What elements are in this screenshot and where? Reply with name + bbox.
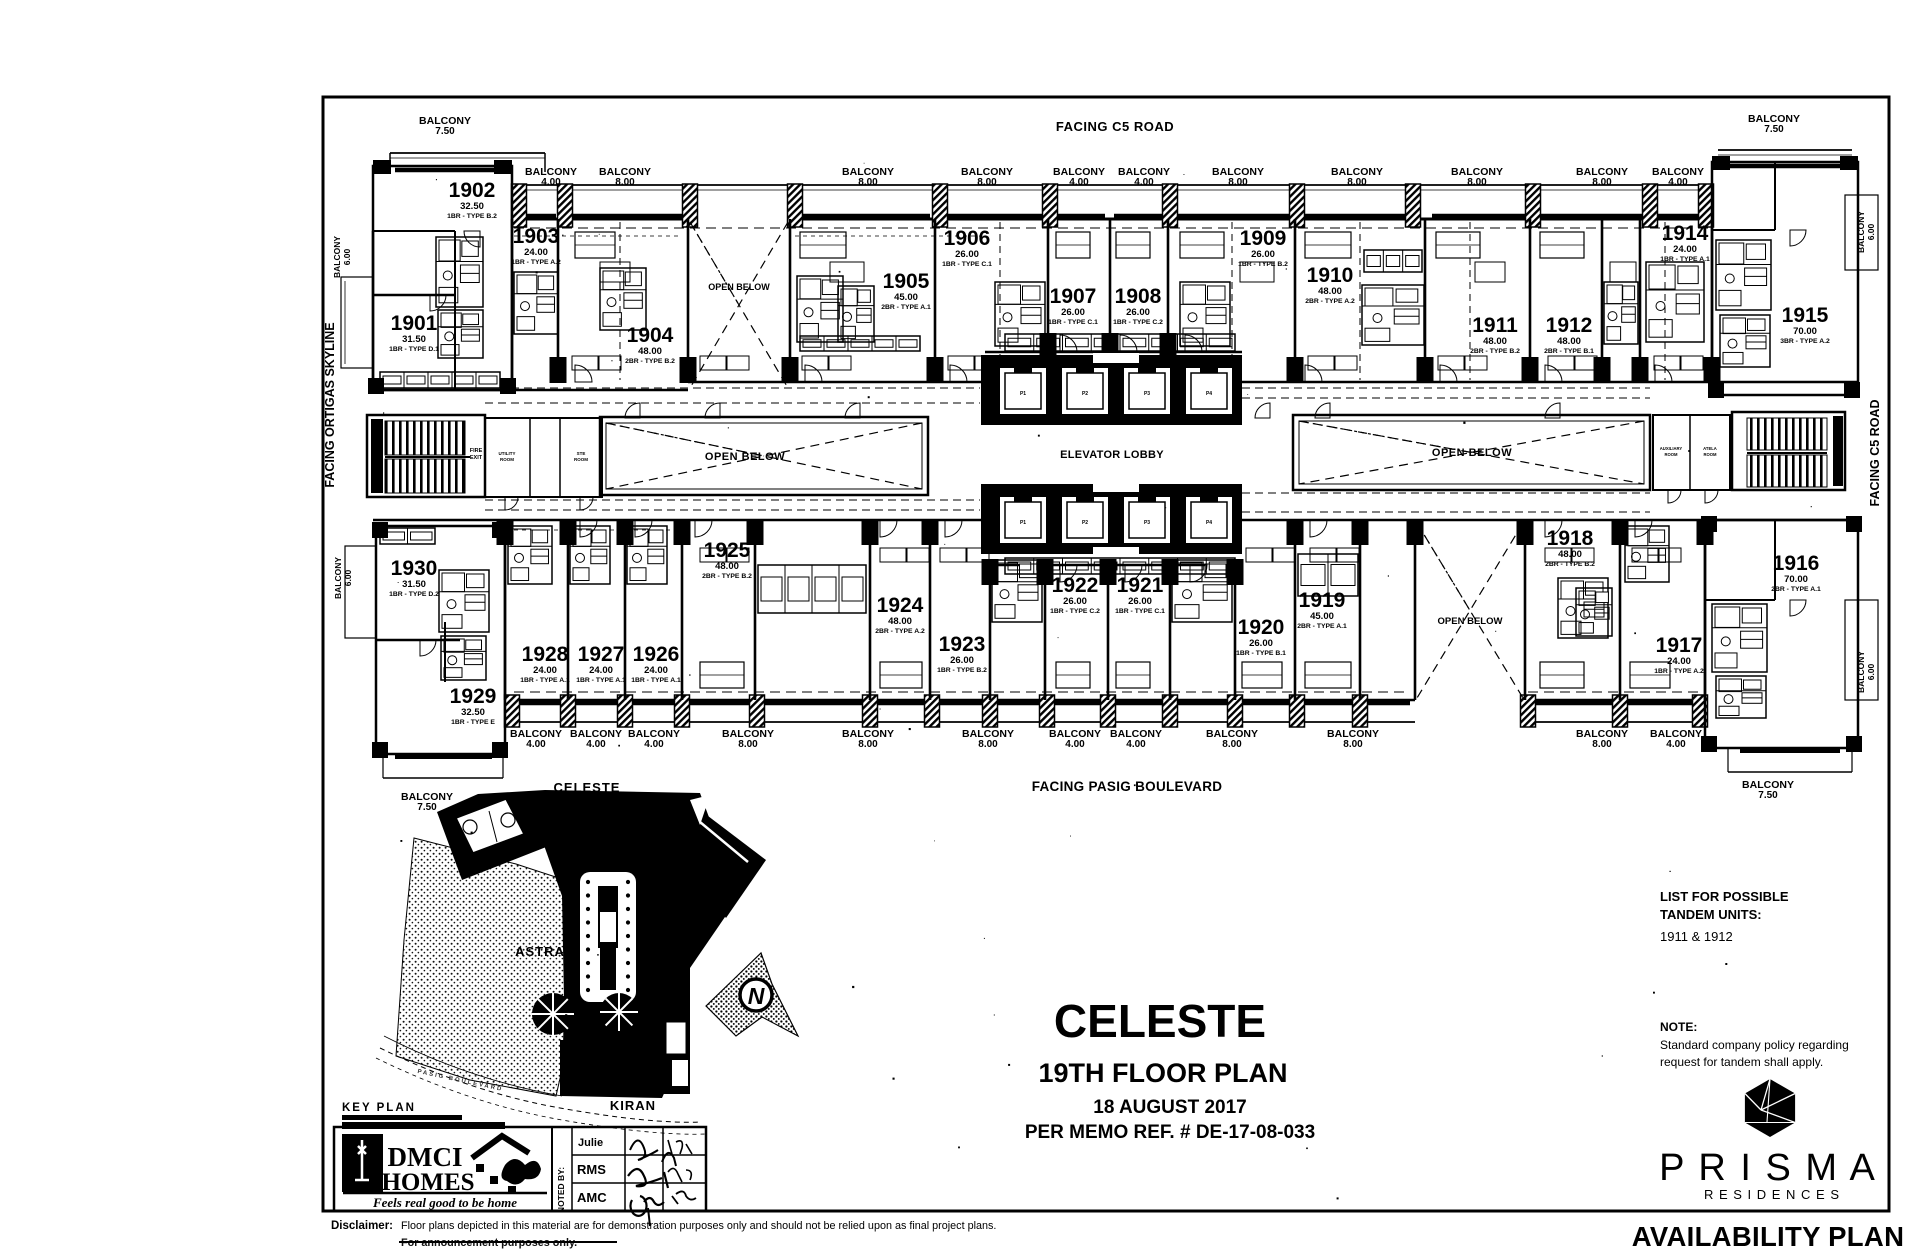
svg-text:P1: P1	[1020, 391, 1026, 397]
svg-text:8.00: 8.00	[858, 177, 878, 188]
svg-text:FACING PASIG BOULEVARD: FACING PASIG BOULEVARD	[1032, 779, 1223, 794]
svg-text:1BR - TYPE A.2: 1BR - TYPE A.2	[1654, 668, 1704, 675]
svg-text:26.00: 26.00	[1128, 596, 1152, 607]
svg-text:48.00: 48.00	[638, 346, 662, 357]
svg-text:2BR - TYPE B.2: 2BR - TYPE B.2	[625, 358, 675, 365]
svg-text:1BR - TYPE C.1: 1BR - TYPE C.1	[1048, 319, 1098, 326]
svg-text:PER MEMO REF. # DE-17-08-033: PER MEMO REF. # DE-17-08-033	[1025, 1122, 1315, 1143]
svg-text:2BR - TYPE A.2: 2BR - TYPE A.2	[875, 628, 925, 635]
svg-text:7.50: 7.50	[1764, 124, 1784, 135]
svg-text:CELESTE: CELESTE	[1054, 995, 1266, 1047]
svg-text:1903: 1903	[513, 225, 560, 248]
svg-text:1BR - TYPE D.1: 1BR - TYPE D.1	[389, 346, 439, 353]
svg-text:1901: 1901	[391, 312, 438, 335]
svg-text:1BR - TYPE A.1: 1BR - TYPE A.1	[520, 677, 570, 684]
svg-text:1BR - TYPE C.2: 1BR - TYPE C.2	[1113, 319, 1163, 326]
svg-text:1BR - TYPE E: 1BR - TYPE E	[451, 719, 495, 726]
svg-text:4.00: 4.00	[526, 739, 546, 750]
svg-text:1BR - TYPE A.1: 1BR - TYPE A.1	[631, 677, 681, 684]
svg-text:24.00: 24.00	[533, 665, 557, 676]
svg-text:1915: 1915	[1782, 304, 1829, 327]
svg-text:19TH FLOOR PLAN: 19TH FLOOR PLAN	[1038, 1058, 1287, 1088]
svg-text:1919: 1919	[1299, 589, 1346, 612]
svg-text:AMC: AMC	[577, 1190, 607, 1205]
svg-text:1BR - TYPE B.2: 1BR - TYPE B.2	[1238, 261, 1288, 268]
svg-text:1917: 1917	[1656, 634, 1703, 657]
svg-text:4.00: 4.00	[1666, 739, 1686, 750]
svg-text:1921: 1921	[1117, 574, 1164, 597]
svg-text:26.00: 26.00	[955, 249, 979, 260]
svg-text:8.00: 8.00	[1592, 177, 1612, 188]
svg-text:EXIT: EXIT	[470, 455, 483, 461]
svg-text:70.00: 70.00	[1793, 326, 1817, 337]
svg-text:R E S I D E N C E S: R E S I D E N C E S	[1704, 1187, 1840, 1202]
svg-text:1929: 1929	[450, 685, 497, 708]
svg-text:8.00: 8.00	[1467, 177, 1487, 188]
svg-text:CELESTE: CELESTE	[554, 780, 621, 795]
svg-text:8.00: 8.00	[1343, 739, 1363, 750]
svg-text:2BR - TYPE B.1: 2BR - TYPE B.1	[1544, 348, 1594, 355]
svg-text:FACING ORTIGAS SKYLINE: FACING ORTIGAS SKYLINE	[323, 322, 337, 487]
svg-text:BALCONY: BALCONY	[1856, 211, 1866, 253]
svg-text:4.00: 4.00	[1668, 177, 1688, 188]
svg-text:1920: 1920	[1238, 616, 1285, 639]
svg-text:FACING C5 ROAD: FACING C5 ROAD	[1868, 400, 1882, 507]
svg-text:STE: STE	[577, 451, 586, 456]
svg-text:1908: 1908	[1115, 285, 1162, 308]
svg-text:26.00: 26.00	[1061, 307, 1085, 318]
svg-text:NOTE:: NOTE:	[1660, 1020, 1697, 1034]
svg-text:P R I S M A: P R I S M A	[1659, 1147, 1877, 1189]
svg-text:1927: 1927	[578, 643, 625, 666]
svg-text:4.00: 4.00	[1126, 739, 1146, 750]
svg-text:1905: 1905	[883, 270, 930, 293]
svg-text:2BR - TYPE A.1: 2BR - TYPE A.1	[881, 304, 931, 311]
svg-text:OPEN BELOW: OPEN BELOW	[1432, 447, 1512, 459]
svg-text:OPEN BELOW: OPEN BELOW	[708, 282, 770, 292]
svg-text:24.00: 24.00	[644, 665, 668, 676]
svg-text:ROOM: ROOM	[574, 457, 588, 462]
svg-text:24.00: 24.00	[1667, 656, 1691, 667]
svg-text:1923: 1923	[939, 633, 986, 656]
svg-text:1BR - TYPE C.1: 1BR - TYPE C.1	[942, 261, 992, 268]
svg-text:4.00: 4.00	[541, 177, 561, 188]
svg-text:8.00: 8.00	[1222, 739, 1242, 750]
svg-text:1906: 1906	[944, 227, 991, 250]
svg-text:2BR - TYPE B.2: 2BR - TYPE B.2	[702, 573, 752, 580]
svg-text:8.00: 8.00	[1592, 739, 1612, 750]
svg-text:BALCONY: BALCONY	[1856, 651, 1866, 693]
svg-text:4.00: 4.00	[586, 739, 606, 750]
svg-text:FACING C5 ROAD: FACING C5 ROAD	[1056, 119, 1174, 134]
svg-text:8.00: 8.00	[978, 739, 998, 750]
svg-text:ROOM: ROOM	[500, 457, 514, 462]
svg-text:4.00: 4.00	[1134, 177, 1154, 188]
svg-text:AVAILABILITY PLAN: AVAILABILITY PLAN	[1632, 1221, 1904, 1252]
svg-text:2BR - TYPE A.2: 2BR - TYPE A.2	[1305, 298, 1355, 305]
svg-text:2BR - TYPE B.2: 2BR - TYPE B.2	[1470, 348, 1520, 355]
svg-text:1911 & 1912: 1911 & 1912	[1660, 929, 1733, 944]
svg-text:70.00: 70.00	[1784, 574, 1808, 585]
svg-text:32.50: 32.50	[460, 201, 484, 212]
svg-text:1BR - TYPE A.1: 1BR - TYPE A.1	[576, 677, 626, 684]
svg-text:ELEVATOR LOBBY: ELEVATOR LOBBY	[1060, 449, 1164, 461]
svg-text:7.50: 7.50	[435, 126, 455, 137]
svg-text:1909: 1909	[1240, 227, 1287, 250]
svg-text:26.00: 26.00	[1249, 638, 1273, 649]
svg-text:1916: 1916	[1773, 552, 1820, 575]
svg-text:6.00: 6.00	[1866, 223, 1876, 240]
svg-text:1930: 1930	[391, 557, 438, 580]
svg-text:48.00: 48.00	[1557, 336, 1581, 347]
svg-text:8.00: 8.00	[615, 177, 635, 188]
svg-text:24.00: 24.00	[524, 247, 548, 258]
svg-text:1928: 1928	[522, 643, 569, 666]
svg-text:OPEN BELOW: OPEN BELOW	[705, 451, 785, 463]
svg-text:1904: 1904	[627, 324, 674, 347]
svg-text:request for tandem shall apply: request for tandem shall apply.	[1660, 1055, 1823, 1069]
svg-text:45.00: 45.00	[894, 292, 918, 303]
svg-text:AUXILIARY: AUXILIARY	[1660, 446, 1683, 451]
svg-text:FIRE: FIRE	[470, 448, 483, 454]
svg-text:2BR - TYPE A.1: 2BR - TYPE A.1	[1771, 586, 1821, 593]
svg-text:OPEN BELOW: OPEN BELOW	[1438, 616, 1503, 627]
svg-text:1BR - TYPE D.2: 1BR - TYPE D.2	[389, 591, 439, 598]
svg-text:P2: P2	[1082, 520, 1088, 526]
svg-text:1925: 1925	[704, 539, 751, 562]
svg-text:P3: P3	[1144, 520, 1150, 526]
svg-text:8.00: 8.00	[1228, 177, 1248, 188]
svg-text:6.00: 6.00	[1866, 663, 1876, 680]
svg-text:1918: 1918	[1547, 527, 1594, 550]
svg-text:1BR - TYPE B.2: 1BR - TYPE B.2	[447, 213, 497, 220]
svg-text:6.00: 6.00	[343, 569, 353, 586]
svg-text:LIST FOR POSSIBLE: LIST FOR POSSIBLE	[1660, 889, 1789, 904]
svg-text:32.50: 32.50	[461, 707, 485, 718]
svg-text:ROOM: ROOM	[1703, 452, 1717, 457]
svg-text:4.00: 4.00	[1069, 177, 1089, 188]
svg-text:45.00: 45.00	[1310, 611, 1334, 622]
svg-text:1902: 1902	[449, 179, 496, 202]
svg-text:N: N	[748, 983, 765, 1009]
svg-text:48.00: 48.00	[1318, 286, 1342, 297]
svg-text:UTILITY: UTILITY	[499, 451, 516, 456]
svg-text:1BR - TYPE B.1: 1BR - TYPE B.1	[1236, 650, 1286, 657]
svg-text:1BR - TYPE B.2: 1BR - TYPE B.2	[937, 667, 987, 674]
svg-text:1BR - TYPE C.1: 1BR - TYPE C.1	[1115, 608, 1165, 615]
svg-text:Floor plans depicted in this m: Floor plans depicted in this material ar…	[401, 1220, 996, 1232]
svg-text:1924: 1924	[877, 594, 924, 617]
svg-text:8.00: 8.00	[1347, 177, 1367, 188]
svg-text:TANDEM UNITS:: TANDEM UNITS:	[1660, 907, 1762, 922]
svg-text:ROOM: ROOM	[1664, 452, 1678, 457]
svg-text:Feels real good to be home: Feels real good to be home	[372, 1195, 517, 1210]
svg-text:RMS: RMS	[577, 1162, 606, 1177]
svg-text:6.00: 6.00	[342, 248, 352, 265]
svg-text:Standard company policy regard: Standard company policy regarding	[1660, 1038, 1849, 1052]
svg-text:7.50: 7.50	[417, 802, 437, 813]
svg-text:P3: P3	[1144, 391, 1150, 397]
svg-text:26.00: 26.00	[950, 655, 974, 666]
svg-text:BALCONY: BALCONY	[333, 557, 343, 599]
svg-text:4.00: 4.00	[644, 739, 664, 750]
svg-text:18 AUGUST 2017: 18 AUGUST 2017	[1093, 1097, 1246, 1118]
svg-text:1910: 1910	[1307, 264, 1354, 287]
svg-text:P2: P2	[1082, 391, 1088, 397]
svg-text:P4: P4	[1206, 520, 1212, 526]
svg-text:KIRAN: KIRAN	[610, 1098, 656, 1113]
svg-text:1911: 1911	[1472, 314, 1518, 337]
svg-text:26.00: 26.00	[1126, 307, 1150, 318]
svg-text:48.00: 48.00	[715, 561, 739, 572]
svg-text:48.00: 48.00	[1558, 549, 1582, 560]
svg-text:7.50: 7.50	[1758, 790, 1778, 801]
svg-text:1926: 1926	[633, 643, 680, 666]
svg-text:26.00: 26.00	[1063, 596, 1087, 607]
svg-text:P1: P1	[1020, 520, 1026, 526]
svg-text:4.00: 4.00	[1065, 739, 1085, 750]
svg-text:48.00: 48.00	[888, 616, 912, 627]
svg-text:8.00: 8.00	[858, 739, 878, 750]
svg-text:31.50: 31.50	[402, 579, 426, 590]
svg-text:1BR - TYPE A.2: 1BR - TYPE A.2	[511, 259, 561, 266]
svg-text:24.00: 24.00	[589, 665, 613, 676]
svg-text:31.50: 31.50	[402, 334, 426, 345]
svg-text:24.00: 24.00	[1673, 244, 1697, 255]
svg-text:3BR - TYPE A.2: 3BR - TYPE A.2	[1780, 338, 1830, 345]
svg-text:1922: 1922	[1052, 574, 1099, 597]
svg-text:8.00: 8.00	[738, 739, 758, 750]
svg-text:1BR - TYPE C.2: 1BR - TYPE C.2	[1050, 608, 1100, 615]
svg-text:1912: 1912	[1546, 314, 1593, 337]
svg-text:2BR - TYPE B.2: 2BR - TYPE B.2	[1545, 561, 1595, 568]
svg-text:BALCONY: BALCONY	[332, 236, 342, 278]
svg-text:8.00: 8.00	[977, 177, 997, 188]
svg-text:KEY PLAN: KEY PLAN	[342, 1102, 416, 1114]
svg-text:1907: 1907	[1050, 285, 1097, 308]
svg-text:1BR - TYPE A.1: 1BR - TYPE A.1	[1660, 256, 1710, 263]
svg-text:DMCI: DMCI	[388, 1142, 463, 1172]
svg-text:48.00: 48.00	[1483, 336, 1507, 347]
svg-text:ATELA: ATELA	[1703, 446, 1717, 451]
svg-text:NOTED BY:: NOTED BY:	[556, 1167, 566, 1213]
svg-text:ASTRA: ASTRA	[515, 944, 565, 959]
svg-text:P4: P4	[1206, 391, 1212, 397]
svg-text:Disclaimer:: Disclaimer:	[331, 1220, 393, 1232]
svg-text:2BR - TYPE A.1: 2BR - TYPE A.1	[1297, 623, 1347, 630]
svg-text:26.00: 26.00	[1251, 249, 1275, 260]
svg-text:Julie: Julie	[578, 1137, 603, 1149]
svg-text:1914: 1914	[1662, 222, 1709, 245]
